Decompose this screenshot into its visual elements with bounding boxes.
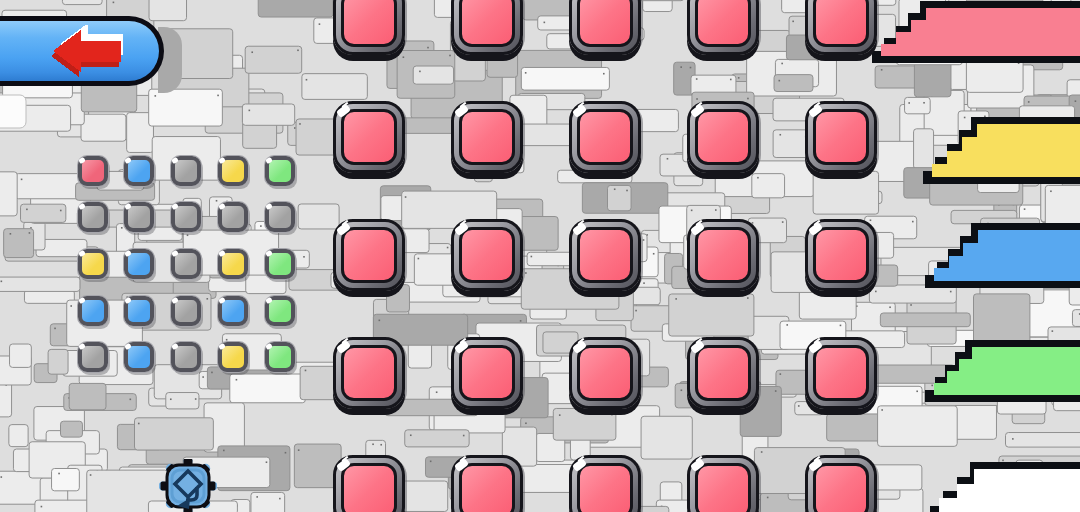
pattern-cell-gray: [171, 296, 201, 326]
red-button[interactable]: [333, 101, 405, 173]
red-button[interactable]: [333, 0, 405, 55]
cell-highlight: [124, 343, 132, 351]
cell-highlight: [171, 157, 179, 165]
pattern-cell-gray: [78, 342, 108, 372]
red-button[interactable]: [333, 337, 405, 409]
red-button[interactable]: [687, 0, 759, 55]
cell-highlight: [218, 343, 226, 351]
cell-highlight: [78, 250, 86, 258]
red-button-face: [577, 463, 633, 512]
red-button-face: [813, 109, 869, 165]
pattern-cell-gray: [78, 202, 108, 232]
red-button[interactable]: [451, 101, 523, 173]
pattern-cell-gray: [171, 342, 201, 372]
red-button-face: [341, 109, 397, 165]
pattern-cell-yellow: [218, 342, 248, 372]
cell-highlight: [265, 343, 273, 351]
cell-highlight: [265, 250, 273, 258]
pattern-cell-gray: [171, 156, 201, 186]
red-button[interactable]: [569, 337, 641, 409]
red-button-face: [341, 0, 397, 47]
cell-highlight: [265, 157, 273, 165]
game-viewport: [0, 0, 1080, 512]
pattern-cell-gray: [124, 202, 154, 232]
pattern-cell-blue: [124, 249, 154, 279]
red-button-face: [459, 0, 515, 47]
red-button-face: [341, 227, 397, 283]
pattern-cell-yellow: [218, 156, 248, 186]
red-button-face: [695, 0, 751, 47]
red-button[interactable]: [333, 219, 405, 291]
pattern-cell-blue: [218, 296, 248, 326]
pattern-cell-gray: [171, 202, 201, 232]
red-button[interactable]: [451, 337, 523, 409]
pattern-cell-gray: [218, 202, 248, 232]
pattern-cell-blue: [124, 156, 154, 186]
red-button[interactable]: [569, 101, 641, 173]
red-button-face: [459, 109, 515, 165]
pattern-cell-yellow: [78, 249, 108, 279]
red-button-face: [813, 0, 869, 47]
red-button-face: [577, 109, 633, 165]
cell-highlight: [171, 297, 179, 305]
pattern-cell-green: [265, 249, 295, 279]
cell-highlight: [78, 157, 86, 165]
red-button-face: [695, 345, 751, 401]
red-button-face: [459, 345, 515, 401]
cell-highlight: [78, 297, 86, 305]
red-button[interactable]: [687, 101, 759, 173]
red-button[interactable]: [805, 101, 877, 173]
red-button[interactable]: [451, 455, 523, 512]
red-button[interactable]: [687, 455, 759, 512]
cell-highlight: [218, 203, 226, 211]
cell-highlight: [265, 203, 273, 211]
cell-highlight: [171, 203, 179, 211]
red-button[interactable]: [451, 219, 523, 291]
red-button-face: [459, 227, 515, 283]
red-button[interactable]: [687, 219, 759, 291]
pattern-cell-blue: [78, 296, 108, 326]
cell-highlight: [171, 250, 179, 258]
red-button-face: [813, 345, 869, 401]
red-button-face: [695, 463, 751, 512]
cell-highlight: [124, 203, 132, 211]
red-button[interactable]: [805, 0, 877, 55]
red-button[interactable]: [805, 337, 877, 409]
pattern-cell-red: [78, 156, 108, 186]
red-button[interactable]: [805, 219, 877, 291]
cell-highlight: [78, 203, 86, 211]
cell-highlight: [124, 297, 132, 305]
cell-highlight: [124, 157, 132, 165]
red-button-face: [695, 109, 751, 165]
red-button[interactable]: [805, 455, 877, 512]
cell-highlight: [218, 297, 226, 305]
red-button-face: [341, 345, 397, 401]
red-button[interactable]: [569, 0, 641, 55]
pattern-cell-green: [265, 342, 295, 372]
cell-highlight: [218, 250, 226, 258]
red-button-face: [695, 227, 751, 283]
red-button-face: [459, 463, 515, 512]
pattern-cell-green: [265, 296, 295, 326]
back-arrow-icon: [51, 25, 123, 77]
cell-highlight: [124, 250, 132, 258]
cell-highlight: [218, 157, 226, 165]
red-button[interactable]: [333, 455, 405, 512]
red-button-face: [577, 345, 633, 401]
pattern-cell-blue: [124, 296, 154, 326]
cell-highlight: [171, 343, 179, 351]
red-button[interactable]: [451, 0, 523, 55]
red-button-face: [341, 463, 397, 512]
pattern-cell-green: [265, 156, 295, 186]
red-button[interactable]: [569, 219, 641, 291]
spike-mine-enemy: [159, 459, 217, 512]
red-button-face: [577, 0, 633, 47]
red-button-face: [577, 227, 633, 283]
cell-highlight: [265, 297, 273, 305]
pattern-cell-yellow: [218, 249, 248, 279]
red-button-face: [813, 463, 869, 512]
pattern-cell-blue: [124, 342, 154, 372]
pattern-cell-gray: [265, 202, 295, 232]
back-button[interactable]: [0, 16, 164, 86]
red-button[interactable]: [687, 337, 759, 409]
cell-highlight: [78, 343, 86, 351]
red-button[interactable]: [569, 455, 641, 512]
red-button-face: [813, 227, 869, 283]
pattern-cell-gray: [171, 249, 201, 279]
